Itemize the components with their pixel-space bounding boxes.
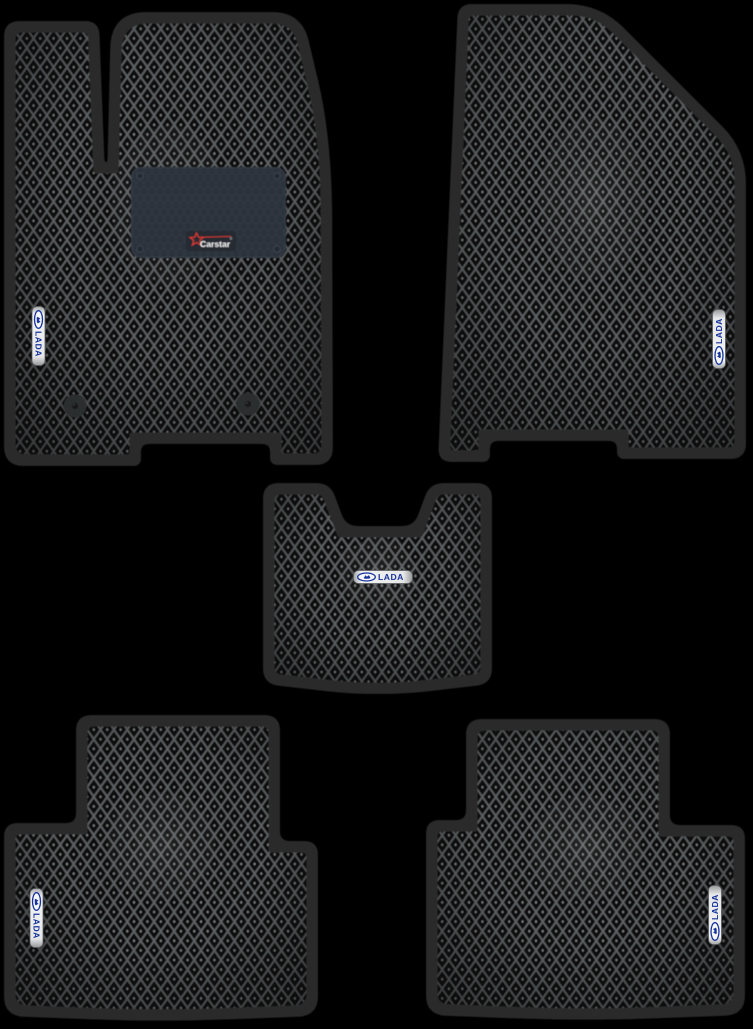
svg-text:Carstar: Carstar	[200, 239, 231, 249]
svg-text:®: ®	[230, 236, 233, 241]
